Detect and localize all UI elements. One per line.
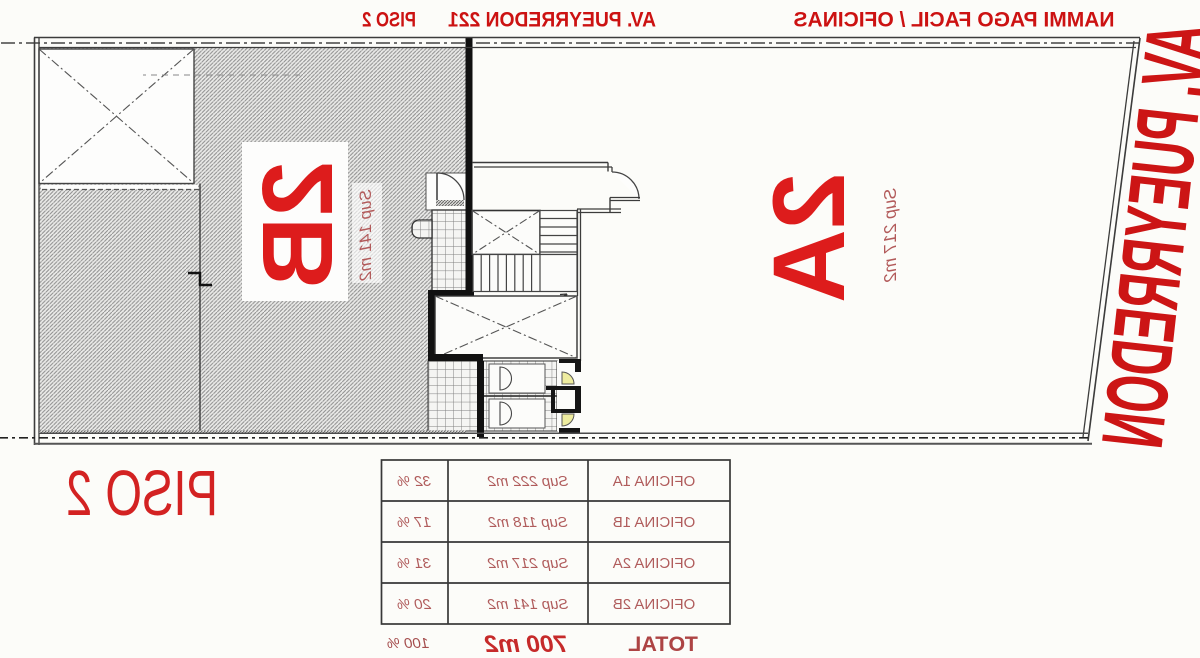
svg-text:100 %: 100 % <box>387 635 430 652</box>
svg-text:32 %: 32 % <box>397 473 431 490</box>
svg-text:2B: 2B <box>242 161 354 289</box>
svg-text:17 %: 17 % <box>397 514 431 531</box>
svg-text:2A: 2A <box>752 173 866 303</box>
svg-text:Sup 217 m2: Sup 217 m2 <box>880 188 900 283</box>
svg-text:Sup 222 m2: Sup 222 m2 <box>487 473 569 490</box>
svg-text:700 m2: 700 m2 <box>484 631 567 658</box>
svg-text:OFICINA 1B: OFICINA 1B <box>613 514 696 531</box>
svg-text:OFICINA 2A: OFICINA 2A <box>613 555 696 572</box>
svg-text:AV. PUEYRREDON: AV. PUEYRREDON <box>1084 18 1200 452</box>
svg-text:OFICINA 2B: OFICINA 2B <box>613 596 696 613</box>
svg-text:31 %: 31 % <box>397 555 431 572</box>
svg-text:PISO 2: PISO 2 <box>66 457 218 529</box>
svg-text:PISO 2: PISO 2 <box>362 9 416 32</box>
svg-text:TOTAL: TOTAL <box>628 632 698 656</box>
svg-text:NAMMI PAGO FACIL / OFICINAS: NAMMI PAGO FACIL / OFICINAS <box>794 9 1115 32</box>
svg-text:AV. PUEYRREDON 221: AV. PUEYRREDON 221 <box>448 9 656 32</box>
svg-text:Sup 118 m2: Sup 118 m2 <box>487 514 567 531</box>
svg-text:Sup 141 m2: Sup 141 m2 <box>356 189 375 281</box>
svg-text:Sup 141 m2: Sup 141 m2 <box>487 596 569 613</box>
svg-text:Sup 217 m2: Sup 217 m2 <box>487 555 569 572</box>
svg-text:20 %: 20 % <box>397 596 432 613</box>
svg-text:OFICINA 1A: OFICINA 1A <box>613 473 696 490</box>
